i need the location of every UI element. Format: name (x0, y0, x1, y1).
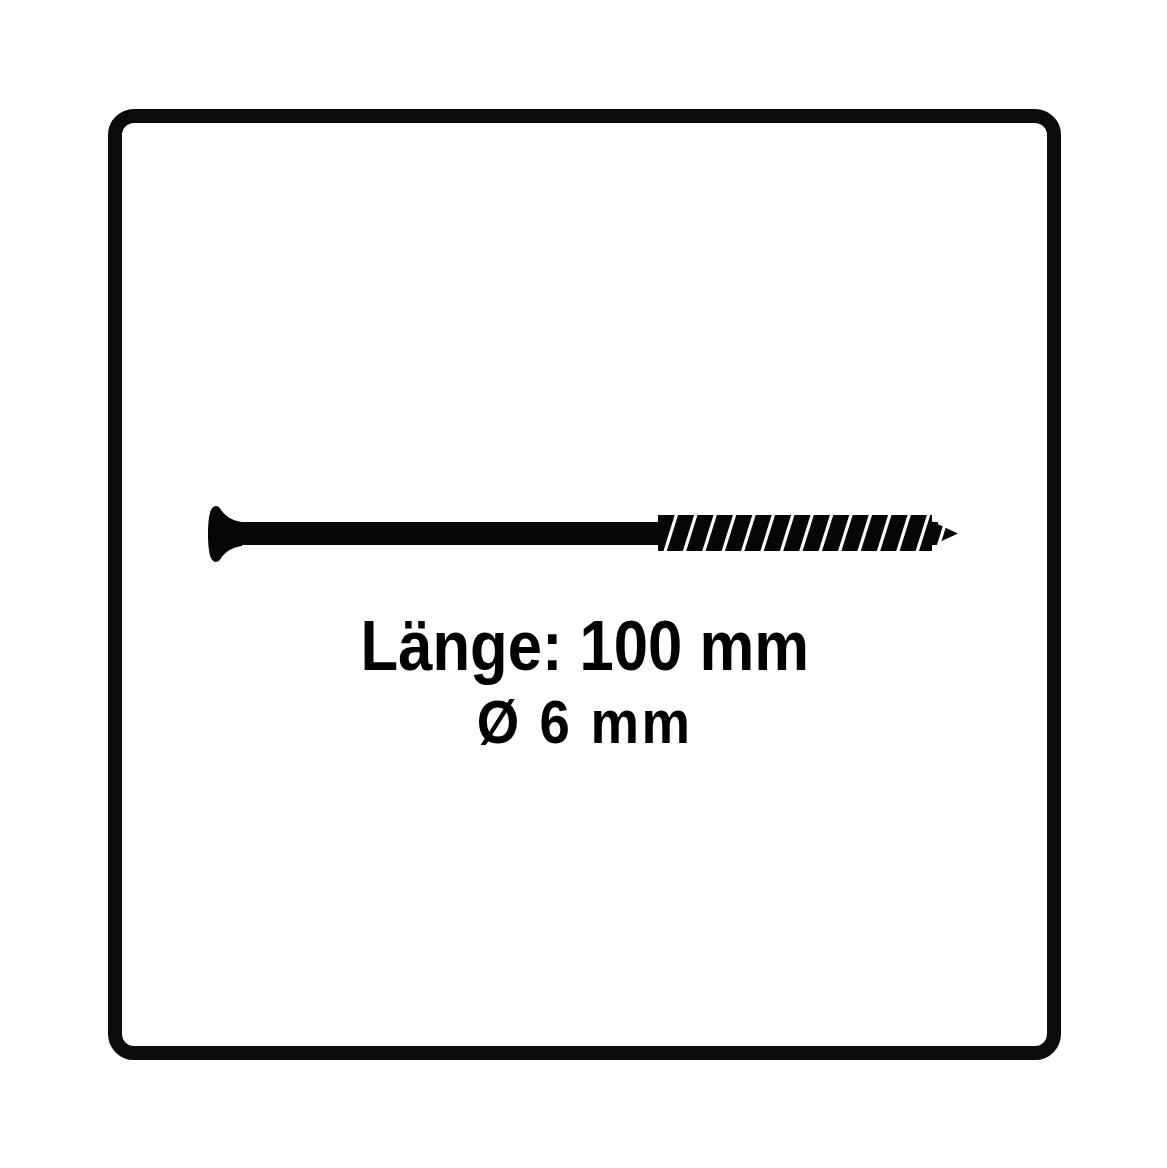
spec-length-text: Länge: 100 mm (360, 607, 808, 685)
product-image: Länge: 100 mm Ø 6 mm (0, 0, 1167, 1168)
spec-diameter-label: Ø 6 mm (108, 687, 1061, 757)
screw-thread-band (658, 515, 932, 551)
spec-length-label: Länge: 100 mm (108, 607, 1061, 685)
screw-head-shape (208, 506, 242, 562)
spec-diameter-text: Ø 6 mm (477, 687, 693, 757)
screw-illustration (0, 0, 1167, 1168)
